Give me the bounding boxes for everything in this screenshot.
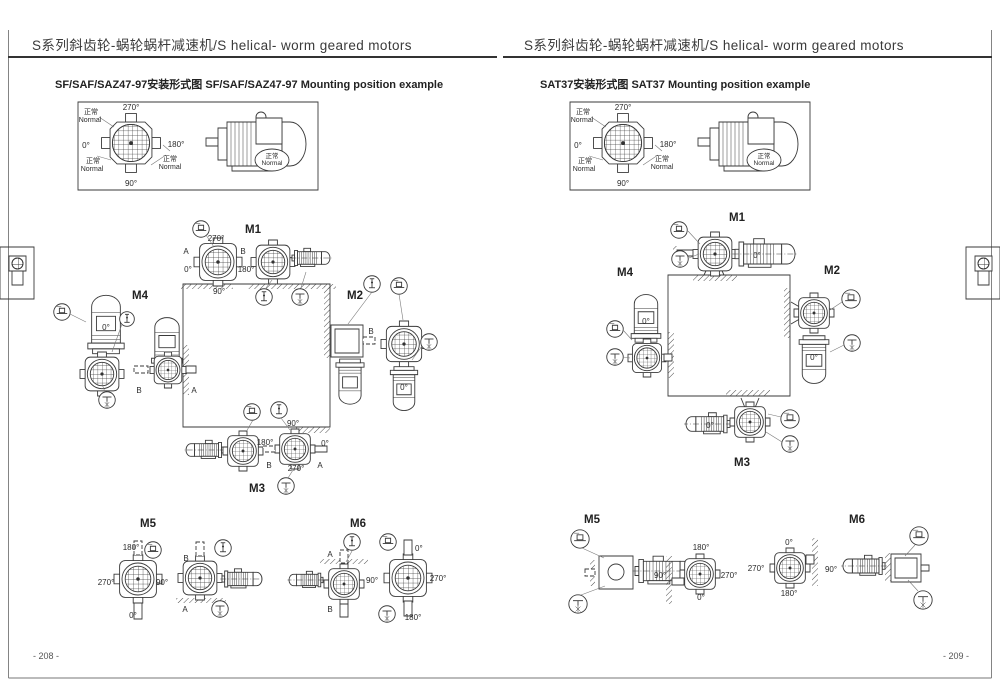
m5-group: M5 180° 90° 270° 0° [569, 514, 737, 613]
normal-label-en: Normal [573, 166, 596, 173]
gearbox-front-view [194, 238, 242, 286]
m6-letter-bottom: B [327, 605, 332, 614]
oil-level-icon [54, 304, 71, 321]
oil-drain-icon [569, 595, 587, 613]
oil-level-icon [380, 534, 397, 551]
m2-label: M2 [824, 265, 840, 277]
oil-level-icon [145, 542, 162, 559]
normal-label-cn: 正常 [578, 156, 592, 165]
m5-group: M5 180° 270° 90° 0° B A [98, 518, 264, 620]
compass-angle-right: 180° [660, 140, 677, 149]
oil-drain-icon [278, 478, 295, 495]
oil-drain-icon [672, 251, 689, 268]
breather-valve-icon [364, 276, 381, 293]
m6-angle-top: 0° [785, 538, 793, 547]
page-left: S系列斜齿轮-蜗轮蜗杆减速机/S helical- worm geared mo… [32, 38, 446, 661]
m5-angle-right: 270° [721, 571, 738, 580]
normal-label-cn: 正常 [86, 156, 100, 165]
m6-angle-left: 270° [748, 564, 765, 573]
oil-drain-icon [914, 591, 932, 609]
m5-angle-bottom: 0° [129, 611, 137, 620]
oil-level-icon [391, 278, 408, 295]
m5-angle-right: 90° [156, 578, 168, 587]
m6-label: M6 [350, 518, 366, 530]
gearbox-front-view [381, 321, 427, 367]
motor-side-view [290, 248, 331, 266]
m2-motor-angle: 0° [400, 383, 408, 392]
gearbox-front-view [680, 554, 720, 594]
m4-group: M4 0° [607, 267, 674, 378]
breather-valve-icon [215, 540, 232, 557]
m4-motor-angle: 0° [642, 317, 650, 326]
m2-motor-angle: 0° [810, 353, 818, 362]
oil-level-icon [910, 527, 928, 545]
m3-label: M3 [249, 483, 265, 495]
normal-label-en: Normal [159, 164, 182, 171]
normal-label-en: Normal [754, 160, 776, 167]
m2-label: M2 [347, 290, 363, 302]
m1-letter-left: A [183, 247, 189, 256]
oil-level-icon [607, 321, 624, 338]
normal-label-cn: 正常 [758, 151, 771, 160]
motor-side-view: 正常 Normal [206, 112, 306, 171]
gearmotor-thumbnail-icon [975, 256, 992, 285]
document-spread: S系列斜齿轮-蜗轮蜗杆减速机/S helical- worm geared mo… [0, 0, 1000, 683]
m3-label: M3 [734, 457, 750, 469]
oil-drain-icon [607, 349, 624, 366]
oil-level-icon [842, 290, 860, 308]
normal-label-cn: 正常 [655, 154, 669, 163]
oil-level-icon [781, 410, 799, 428]
m6-group: M6 A B 0° 90° 270° 180° [287, 518, 446, 622]
m1-angle-top: 270° [208, 234, 225, 243]
m3-motor-angle: 0° [706, 421, 714, 430]
m3-letter-right: A [317, 461, 323, 470]
oil-drain-icon [212, 601, 229, 618]
orientation-box: 270° 正常 Normal 0° 180° 90° 正常 Normal 正常 … [78, 102, 318, 190]
m6-angle-left: 90° [366, 576, 378, 585]
m4-label: M4 [132, 290, 149, 302]
m6-label: M6 [849, 514, 865, 526]
gearbox-front-view [794, 293, 834, 333]
m1-motor-angle: 0° [753, 251, 761, 260]
breather-valve-icon [344, 534, 361, 551]
gearbox-front-view [770, 548, 810, 588]
catalog-spread: S系列斜齿轮-蜗轮蜗杆减速机/S helical- worm geared mo… [0, 0, 1000, 683]
motor-fan-view [102, 114, 161, 173]
normal-label-cn: 正常 [163, 154, 177, 163]
oil-drain-icon [99, 392, 116, 409]
m1-group: M1 A B 270° 0° 180° 90° [181, 221, 336, 306]
oil-level-icon [571, 530, 589, 548]
m4-label: M4 [617, 267, 634, 279]
compass-angle-bottom: 90° [617, 179, 629, 188]
breather-valve-icon [271, 402, 288, 419]
m3-angle-left: 180° [257, 438, 274, 447]
motor-side-view [287, 571, 324, 587]
normal-label-cn: 正常 [84, 107, 98, 116]
compass-angle-right: 180° [168, 140, 185, 149]
page-title: S系列斜齿轮-蜗轮蜗杆减速机/S helical- worm geared mo… [524, 38, 904, 53]
compass-angle-top: 270° [123, 103, 140, 112]
m2-group: M2 B 0° [324, 276, 437, 411]
normal-label-cn: 正常 [576, 107, 590, 116]
normal-label-en: Normal [79, 117, 102, 124]
page-title: S系列斜齿轮-蜗轮蜗杆减速机/S helical- worm geared mo… [32, 38, 412, 53]
m6-angle-bottom: 180° [405, 613, 422, 622]
orientation-box: 270° 正常 Normal 0° 180° 90° 正常 Normal 正常 … [570, 102, 810, 190]
m1-label: M1 [729, 212, 746, 224]
oil-drain-icon [379, 606, 396, 623]
m5-letter-top: B [183, 554, 188, 563]
m3-letter-left: B [266, 461, 271, 470]
m6-angle-top: 0° [415, 544, 423, 553]
m3-angle-bottom: 270° [288, 464, 305, 473]
oil-level-icon [671, 222, 688, 239]
oil-drain-icon [844, 335, 861, 352]
m2-letter: B [368, 327, 373, 336]
m5-angle-left: 90° [654, 571, 666, 580]
gearbox-front-view [223, 431, 263, 471]
m1-angle-left: 0° [184, 265, 192, 274]
motor-side-view [732, 239, 797, 268]
m6-angle-right: 270° [430, 574, 447, 583]
page-number-right: - 209 - [943, 651, 969, 661]
m5-angle-top: 180° [123, 543, 140, 552]
m4-letter-right: A [191, 386, 197, 395]
m6-group: M6 0° 270° 90° 180° [748, 514, 932, 609]
oil-drain-icon [421, 334, 438, 351]
m5-angle-left: 270° [98, 578, 115, 587]
gearbox-front-view [324, 564, 364, 604]
page-right: S系列斜齿轮-蜗轮蜗杆减速机/S helical- worm geared mo… [524, 38, 969, 661]
gearbox-front-view [730, 402, 770, 442]
m4-letter-left: B [136, 386, 141, 395]
normal-label-en: Normal [571, 117, 594, 124]
motor-side-view: 正常 Normal [698, 112, 798, 171]
compass-angle-bottom: 90° [125, 179, 137, 188]
motor-vertical-view [336, 359, 364, 404]
page-number-left: - 208 - [33, 651, 59, 661]
m1-angle-bottom: 90° [213, 287, 225, 296]
motor-fan-view [594, 114, 653, 173]
compass-angle-left: 0° [574, 141, 582, 150]
normal-label-en: Normal [81, 166, 104, 173]
m1-letter-right: B [240, 247, 245, 256]
m5-angle-top: 180° [693, 543, 710, 552]
m5-label: M5 [140, 518, 157, 530]
breather-valve-icon [256, 289, 273, 306]
gearmotor-thumbnail-icon [9, 256, 26, 285]
compass-angle-top: 270° [615, 103, 632, 112]
gearbox-side-view [150, 352, 186, 388]
gearbox-top-view [384, 554, 432, 602]
motor-side-view [841, 555, 887, 575]
gearbox-top-view [114, 555, 162, 603]
section-tab-left [0, 247, 34, 299]
m3-angle-top: 90° [287, 419, 299, 428]
m5-angle-bottom: 0° [697, 593, 705, 602]
m6-angle-right: 90° [825, 565, 837, 574]
oil-drain-icon [292, 289, 309, 306]
section-subtitle: SF/SAF/SAZ47-97安装形式图 SF/SAF/SAZ47-97 Mou… [55, 77, 443, 91]
compass-angle-left: 0° [82, 141, 90, 150]
m4-motor-angle: 0° [102, 323, 110, 332]
m3-angle-right: 0° [321, 439, 329, 448]
gearbox-front-view [80, 352, 124, 396]
motor-side-view [184, 440, 225, 458]
oil-level-icon [244, 404, 261, 421]
gearbox-front-view [251, 240, 295, 284]
m1-label: M1 [245, 224, 262, 236]
oil-drain-icon [782, 436, 799, 453]
m5-letter-bottom: A [182, 605, 188, 614]
normal-label-en: Normal [262, 160, 284, 167]
m5-label: M5 [584, 514, 601, 526]
section-subtitle: SAT37安装形式图 SAT37 Mounting position examp… [540, 77, 810, 91]
m2-group: M2 0° [784, 265, 860, 383]
m1-group: M1 0° [671, 212, 798, 281]
m6-letter-top: A [327, 550, 333, 559]
m6-angle-bottom: 180° [781, 589, 798, 598]
m3-group: M3 90° 180° 0° 270° B A [184, 402, 330, 495]
gearbox-front-view [693, 232, 737, 276]
gearbox-front-view [275, 429, 315, 469]
m4-group: M4 0° B A [54, 290, 198, 408]
m3-group: M3 0° [684, 390, 799, 469]
normal-label-cn: 正常 [266, 151, 279, 160]
motor-side-view [220, 569, 264, 588]
gearbox-front-view [628, 339, 666, 377]
normal-label-en: Normal [651, 164, 674, 171]
mounting-square [668, 275, 790, 396]
section-tab-right [966, 247, 1000, 299]
